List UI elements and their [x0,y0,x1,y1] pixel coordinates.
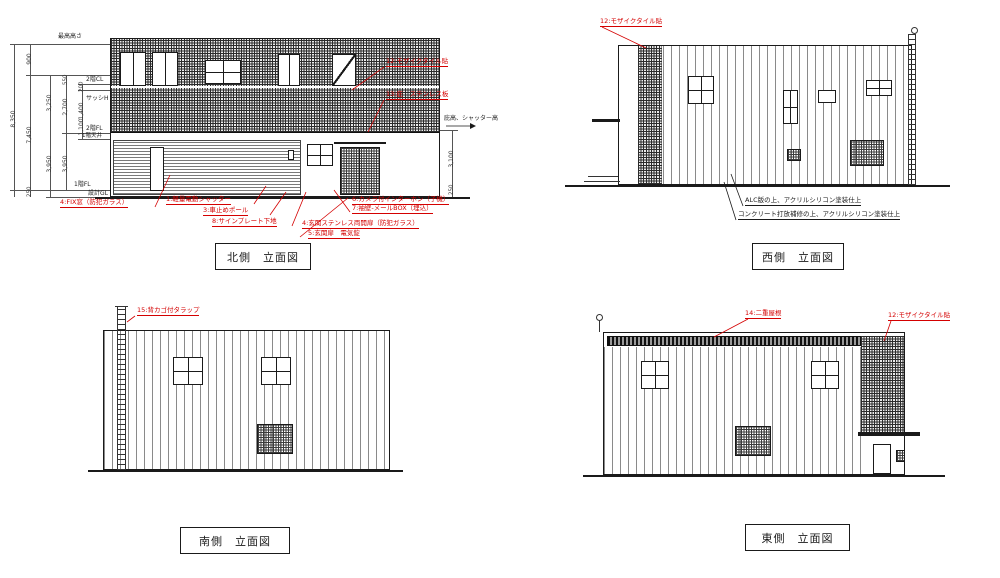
east-meter-box [896,450,905,462]
west-title-box: 西側 立面図 [752,243,844,270]
west-ladder-hook [911,27,918,34]
north-2f-window [278,54,300,86]
west-mosaic-tile-strip [638,46,662,184]
east-window [811,361,839,389]
dim-right-base: 250 [449,175,455,205]
east-canopy [858,432,920,436]
level-line [10,44,110,45]
west-ladder [908,34,916,185]
north-entrance-canopy [334,142,386,144]
west-vent [787,149,801,161]
west-title: 西側 立面図 [762,249,834,265]
west-window [688,76,714,104]
dim-f2-height: 3,250 [47,88,53,118]
east-title: 東側 立面図 [762,530,834,546]
south-louver-window [257,424,293,454]
level-1f-fl: 1階FL [74,182,91,188]
north-2f-window [152,52,178,86]
label-sign-plate-base: 8:サインプレート下地 [212,218,277,227]
east-mosaic-tile-strip [861,336,904,433]
west-step [588,176,618,177]
west-window [866,80,892,96]
east-pipe [599,321,600,332]
label-mailbox: 7:袖壁-メールBOX（埋込） [352,205,433,214]
level-top: 最高高さ [58,34,82,40]
dim-upper-total: 7,450 [27,120,33,150]
leader-line [724,182,736,220]
west-window-tall [783,90,798,124]
north-shutter [113,140,301,195]
east-ground-line [583,475,945,477]
north-interphone [288,150,294,160]
south-title: 南側 立面図 [199,533,271,549]
east-back-door [873,444,891,474]
dim-right-height: 3,100 [449,144,455,174]
level-2f-fl: 2階FL [86,126,103,132]
south-ground-line [88,470,403,472]
west-window-small [818,90,836,103]
north-title: 北側 立面図 [227,249,299,265]
west-step [584,181,620,182]
label-double-roof: 14:二重屋根 [745,310,781,319]
east-title-box: 東側 立面図 [745,524,850,551]
level-2f-cl: 2階CL [86,77,103,83]
level-1f-ceiling: 1階天井 [82,134,102,140]
south-window [261,357,291,385]
west-louver-window [850,140,884,166]
leader-line [127,316,135,322]
north-2f-window [120,52,146,86]
east-window [641,361,669,389]
label-entrance-electric-lock: 5:玄関扉 電気錠 [308,230,360,239]
north-band-joint [111,86,439,88]
east-pipe-hook [596,314,603,321]
label-mosaic-tile: 12:モザイクタイル貼 [888,312,950,321]
level-line [440,130,458,131]
label-mosaic-tile: 12:モザイクタイル貼 [386,58,448,67]
north-2f-window [205,60,241,84]
south-ladder-with-cage [117,306,126,470]
east-louver-window [735,426,771,456]
label-bollard: 3:車止めポール [203,207,248,216]
north-2f-window [332,54,356,86]
label-cage-ladder: 15:背カゴ付タラップ [137,307,199,316]
south-window [173,357,203,385]
dim-parapet: 900 [27,44,33,74]
north-entrance-door [340,147,380,195]
east-double-roof-band [607,336,863,346]
north-door-centerline [359,147,360,195]
dim-f1-height-b: 3,950 [63,149,69,179]
arrow-head [470,123,476,129]
north-1f-window [307,144,333,166]
dim-f2-ceiling: 2,700 [63,92,69,122]
south-title-box: 南側 立面図 [180,527,290,554]
label-concrete-finish: コンクリート打放補修の上、アクリルシリコン塗装仕上 [738,211,900,220]
dim-f1-height-a: 3,950 [47,149,53,179]
dim-550: 550 [63,65,69,95]
dim-base: 250 [27,177,33,207]
label-fix-window: 4:FIX窓（防犯ガラス） [60,199,128,208]
label-hisashi-stainless: 13:庇 ステンレス板 [386,91,448,100]
south-siding-wall [104,331,389,469]
north-fix-window [150,147,164,191]
north-title-box: 北側 立面図 [215,243,311,270]
level-sash-h: サッシH [86,96,109,102]
dim-total: 8,350 [11,104,17,134]
label-light-electric-shutter: 1:軽量電動シャッター [166,196,231,205]
west-ground-line [565,185,950,187]
label-hisashi-shutter-height: 庇高、シャッター高 [444,116,498,122]
south-ladder-top-bar [115,306,128,307]
west-canopy [592,119,620,122]
label-alc-finish: ALC版の上、アクリルシリコン塗装仕上 [745,197,861,206]
label-mosaic-tile: 12:モザイクタイル貼 [600,18,662,27]
